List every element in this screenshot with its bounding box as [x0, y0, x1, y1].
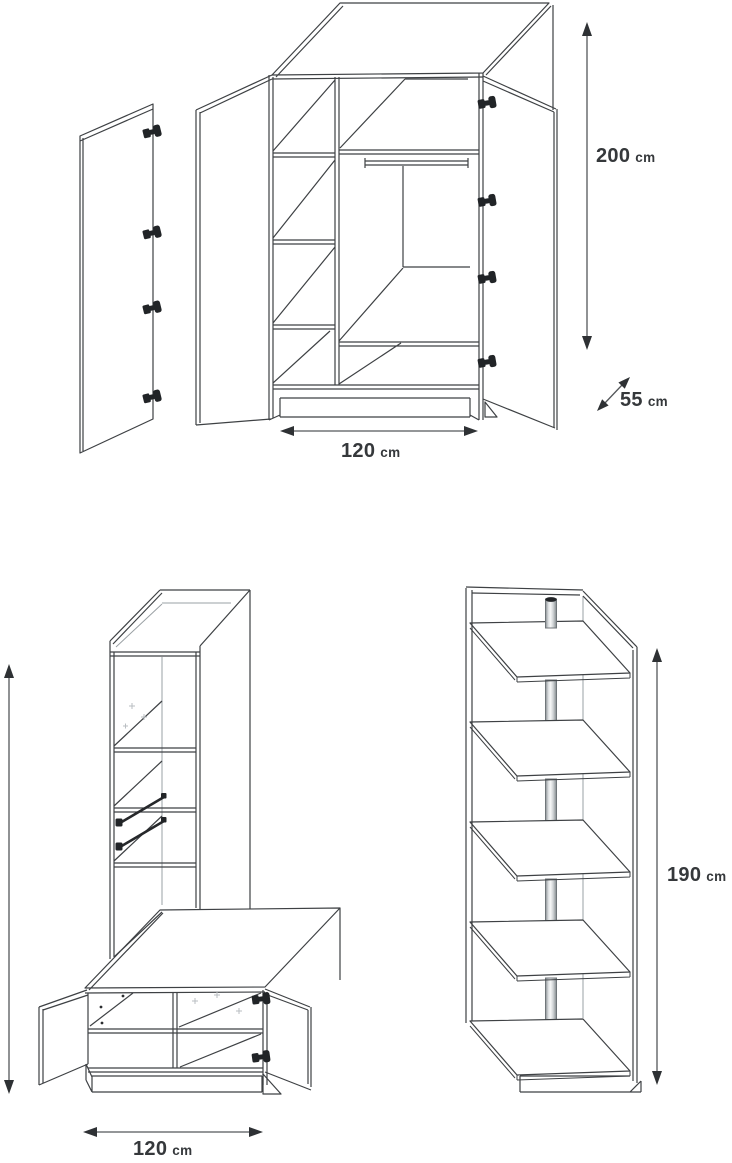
- wardrobe-carcass-frame: [269, 5, 553, 420]
- arrow-down-icon: [4, 1080, 14, 1094]
- arrow-left-icon: [83, 1127, 97, 1137]
- shelf-pin: [122, 995, 125, 998]
- drawer-slide-rails: [116, 793, 167, 851]
- glass-shine-icon: [123, 703, 147, 729]
- corner-shelf-2: [470, 720, 630, 781]
- shelf-surface: [470, 920, 630, 976]
- hinge-icon: [142, 225, 162, 241]
- corner-shelf-5: [470, 1019, 630, 1080]
- arrow-up-icon: [652, 648, 662, 662]
- hall-unit: 120cm: [4, 590, 340, 1160]
- drawer-rail: [120, 797, 164, 823]
- hinge-icon: [251, 1050, 270, 1064]
- shelf-surface: [470, 1019, 630, 1075]
- wardrobe-interior-shelves: [273, 77, 479, 385]
- hall-unit-height-dimension: [4, 664, 14, 1094]
- hinge-icon: [477, 96, 497, 111]
- wardrobe-height-dimension: 200cm: [582, 22, 655, 350]
- corner-shelf-height-label: 190cm: [667, 864, 726, 886]
- arrow-up-icon: [582, 22, 592, 36]
- wardrobe-detached-door: [80, 104, 162, 453]
- wardrobe-depth-label: 55cm: [620, 389, 668, 411]
- corner-shelf-1: [470, 621, 630, 682]
- cabinet-inner-edges: [116, 603, 231, 905]
- hinge-icon: [477, 194, 497, 209]
- wardrobe-top-panel: [272, 3, 551, 79]
- arrow-down-icon: [582, 336, 592, 350]
- arrow-right-icon: [249, 1127, 263, 1137]
- hall-unit-bench: [39, 908, 340, 1094]
- shelf-surface: [470, 820, 630, 876]
- wardrobe-left-door-open: [196, 75, 272, 425]
- hall-unit-width-dimension: 120cm: [83, 1127, 263, 1160]
- corner-front-strip: [466, 588, 472, 1023]
- shelf-pin: [101, 1022, 104, 1025]
- bench-left-door-open: [39, 990, 88, 1085]
- bench-right-door-panel: [265, 989, 311, 1090]
- arrow-right-icon: [464, 426, 478, 436]
- rail-bracket: [116, 843, 123, 851]
- arrow-down-icon: [652, 1071, 662, 1085]
- corner-base-plinth: [520, 1076, 641, 1092]
- wardrobe-depth-dimension: 55cm: [597, 377, 668, 411]
- cabinet-frame: [110, 590, 250, 959]
- corner-shelf-4: [470, 920, 630, 981]
- rail-end: [161, 817, 167, 823]
- left-door-panel: [196, 75, 272, 425]
- hinge-icon: [142, 300, 162, 316]
- hall-unit-width-label: 120cm: [133, 1138, 192, 1160]
- wardrobe-body: [269, 3, 553, 420]
- shelf-surface: [470, 621, 630, 677]
- drawer-rail: [120, 821, 164, 847]
- hinge-icon: [251, 992, 270, 1006]
- wardrobe-height-label: 200cm: [596, 145, 655, 167]
- right-door-panel: [483, 76, 557, 430]
- detached-door-panel: [80, 104, 153, 453]
- corner-shelf-unit: 190cm: [466, 587, 726, 1092]
- bench-left-door-panel: [39, 990, 88, 1085]
- hinge-icon: [142, 389, 162, 405]
- wardrobe-hanging-rod: [365, 158, 468, 168]
- rail-end: [161, 793, 167, 799]
- shelf-surface: [470, 720, 630, 776]
- bench-carcass: [88, 990, 267, 1085]
- arrow-left-icon: [280, 426, 294, 436]
- diagram-canvas: 200cm 55cm 120cm: [0, 0, 732, 1163]
- hinge-icon: [477, 271, 497, 286]
- hinge-icon: [477, 355, 497, 370]
- furniture-dimension-diagram: 200cm 55cm 120cm: [0, 0, 732, 1163]
- corner-shelf-3: [470, 820, 630, 881]
- cabinet-shelves: [114, 701, 196, 957]
- hinge-icon: [142, 124, 162, 140]
- wardrobe-width-label: 120cm: [341, 440, 400, 462]
- pole-top-cap: [545, 597, 556, 602]
- wardrobe-right-door-open: [477, 76, 557, 430]
- pole-top-stub: [546, 599, 557, 628]
- arrow-up-icon: [4, 664, 14, 678]
- bench-right-door-open: [251, 989, 311, 1090]
- hall-unit-tall-cabinet: [110, 590, 250, 959]
- rail-bracket: [116, 819, 123, 827]
- wardrobe-width-dimension: 120cm: [280, 426, 478, 462]
- wardrobe-exploded-view: 200cm 55cm 120cm: [80, 3, 668, 462]
- bench-top-panel: [85, 908, 340, 993]
- corner-shelf-height-dimension: 190cm: [652, 648, 726, 1085]
- shelf-pin: [100, 1006, 103, 1009]
